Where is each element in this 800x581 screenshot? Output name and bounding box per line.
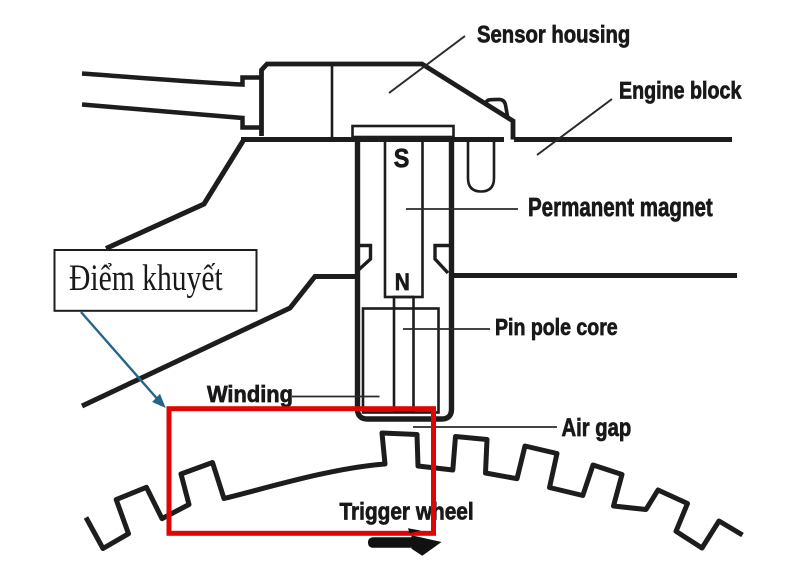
svg-text:S: S: [394, 145, 410, 173]
svg-text:Sensor housing: Sensor housing: [477, 21, 630, 48]
svg-text:Winding: Winding: [207, 380, 293, 407]
svg-text:Điểm khuyết: Điểm khuyết: [69, 258, 223, 299]
svg-text:N: N: [395, 268, 410, 295]
svg-text:Trigger wheel: Trigger wheel: [340, 497, 474, 525]
svg-text:Air gap: Air gap: [562, 413, 632, 442]
svg-text:Pin pole core: Pin pole core: [495, 315, 618, 341]
svg-text:Permanent magnet: Permanent magnet: [528, 193, 713, 222]
svg-text:Engine block: Engine block: [619, 77, 742, 104]
